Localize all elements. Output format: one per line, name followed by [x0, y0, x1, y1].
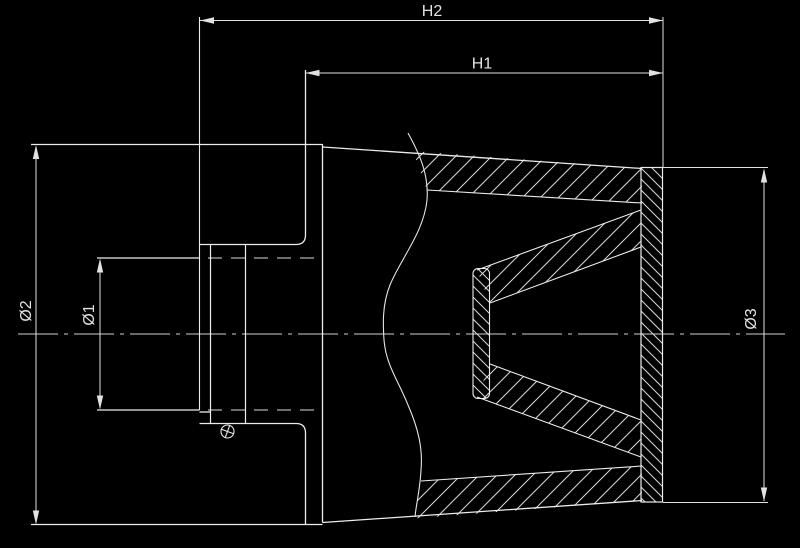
- h2-label: H2: [422, 3, 443, 20]
- dimension-h2: H2: [200, 3, 663, 168]
- dimension-d2: Ø2: [18, 145, 39, 525]
- cone-bottom-wall-section: [323, 466, 643, 523]
- base-cap-section: [641, 168, 663, 503]
- h1-label: H1: [472, 56, 493, 73]
- cone-top-wall-section: [323, 147, 643, 203]
- filter-section-drawing: H2 H1 Ø2 Ø1 Ø3: [0, 0, 800, 548]
- d1-label: Ø1: [81, 304, 98, 325]
- d3-label: Ø3: [743, 308, 760, 329]
- clamp-screw-icon: [219, 423, 236, 440]
- filter-casing-outline: [31, 17, 323, 525]
- rubber-break-line: [383, 133, 427, 517]
- technical-drawing-canvas: H2 H1 Ø2 Ø1 Ø3: [0, 0, 800, 548]
- d2-label: Ø2: [18, 300, 35, 321]
- dimension-d3: Ø3: [663, 168, 768, 503]
- dimension-h1: H1: [306, 56, 664, 77]
